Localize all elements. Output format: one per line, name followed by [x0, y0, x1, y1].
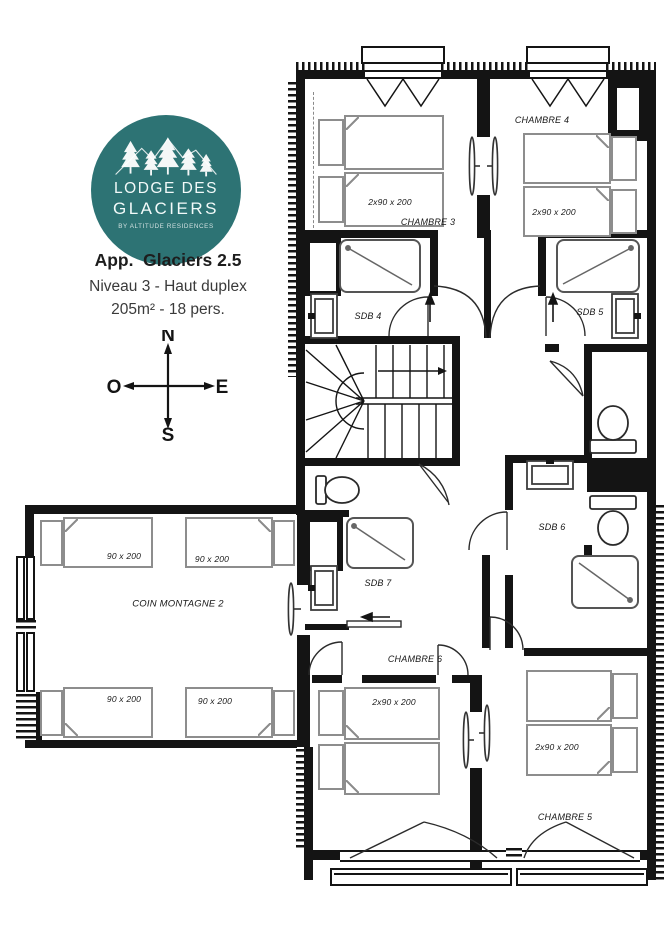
bed-mattress [344, 115, 444, 170]
bed-headboard [611, 136, 637, 181]
bed-headboard [273, 690, 295, 736]
insulated-wall-hatch [16, 620, 36, 632]
window-sill [522, 850, 640, 862]
balcony-railing [516, 868, 648, 886]
compass-north-label: N [161, 330, 175, 346]
logo-name-line2: GLACIERS [113, 199, 219, 219]
floor-plan-page: LODGE DES GLACIERS BY ALTITUDE RESIDENCE… [0, 0, 665, 940]
wall [305, 230, 430, 238]
apartment-capacity: 205m² - 18 pers. [28, 301, 308, 319]
wall [513, 455, 587, 463]
logo-tagline: BY ALTITUDE RESIDENCES [118, 223, 214, 230]
insulated-wall-hatch [16, 694, 36, 740]
pillow-fold [596, 188, 609, 201]
bed-size-label: 90 x 200 [107, 694, 141, 704]
pillow-fold [346, 174, 359, 187]
wall [296, 70, 365, 79]
insulated-wall-hatch [441, 62, 530, 70]
staircase [306, 345, 452, 458]
bed-size-label: 2x90 x 200 [535, 742, 579, 752]
wall [452, 336, 460, 466]
wall [305, 624, 349, 630]
bed-size-label: 90 x 200 [107, 551, 141, 561]
bed-headboard [318, 176, 344, 223]
pillow-fold [65, 519, 78, 532]
wall [25, 505, 34, 558]
wardrobe-line [313, 92, 314, 228]
bed-headboard [318, 690, 344, 736]
wall [524, 648, 647, 656]
bed-size-label: 2x90 x 200 [372, 697, 416, 707]
logo: LODGE DES GLACIERS BY ALTITUDE RESIDENCE… [91, 115, 241, 265]
wall [296, 70, 305, 515]
insulated-wall-hatch [656, 505, 664, 880]
window-sill [365, 70, 441, 79]
compass-west-label: O [107, 377, 122, 398]
wall [430, 230, 438, 296]
pillow-fold [597, 761, 610, 774]
room-label-sdb-4: SDB 4 [354, 311, 381, 321]
bed-size-label: 2x90 x 200 [368, 197, 412, 207]
bed-headboard [40, 690, 63, 736]
wall [305, 510, 349, 517]
wall [305, 458, 452, 466]
wall [304, 850, 340, 860]
wall [297, 515, 310, 585]
window [26, 556, 35, 620]
wall [538, 230, 546, 296]
window-sill [340, 850, 506, 862]
pillow-fold [65, 723, 78, 736]
wall [441, 70, 530, 79]
pillow-fold [597, 707, 610, 720]
room-label-chambre-5: CHAMBRE 5 [538, 812, 592, 822]
wall [640, 850, 647, 860]
logo-trees-mountains-art [110, 129, 222, 179]
wall [545, 344, 559, 352]
wall [470, 675, 482, 712]
window [16, 632, 25, 692]
wall-niche [617, 88, 639, 130]
pillow-fold [596, 135, 609, 148]
wall [305, 336, 452, 344]
compass-rose: N S O E [106, 330, 230, 442]
wall [484, 230, 491, 338]
room-label-sdb-7: SDB 7 [364, 578, 391, 588]
room-label-sdb-6: SDB 6 [538, 522, 565, 532]
insulated-wall-hatch [296, 62, 365, 70]
wall [25, 740, 297, 748]
wall [482, 555, 490, 648]
apartment-title: App. Glaciers 2.5 [28, 250, 308, 271]
compass-east-label: E [216, 377, 229, 398]
window [16, 556, 25, 620]
wall-niche [310, 522, 337, 566]
room-label-chambre-6: CHAMBRE 6 [388, 654, 442, 664]
bed-size-label: 90 x 200 [195, 554, 229, 564]
logo-name-line1: LODGE DES [114, 180, 218, 198]
compass-south-label: S [162, 425, 175, 442]
bed-headboard [273, 520, 295, 566]
room-label-sdb-5: SDB 5 [576, 307, 603, 317]
pillow-fold [346, 117, 359, 130]
insulated-wall-hatch [606, 62, 656, 70]
bed-size-label: 2x90 x 200 [532, 207, 576, 217]
window [526, 46, 610, 64]
pillow-fold [258, 519, 271, 532]
bed-headboard [318, 744, 344, 790]
bed-headboard [318, 119, 344, 166]
wall [584, 352, 592, 458]
wall [584, 344, 647, 352]
pillow-fold [258, 723, 271, 736]
wall [587, 458, 647, 492]
window [26, 632, 35, 692]
pillow-fold [346, 780, 359, 793]
insulated-wall-hatch [288, 82, 296, 377]
wall-niche [310, 243, 336, 291]
wall [304, 747, 313, 880]
room-label-chambre-4: CHAMBRE 4 [515, 115, 569, 125]
wall [584, 545, 592, 573]
insulated-wall-hatch [296, 749, 304, 849]
bed-headboard [611, 189, 637, 234]
room-label-coin-montagne-2: COIN MONTAGNE 2 [132, 599, 224, 610]
bed-size-label: 90 x 200 [198, 696, 232, 706]
bed-headboard [612, 673, 638, 719]
wall [312, 675, 342, 683]
room-label-chambre-3: CHAMBRE 3 [401, 217, 455, 227]
window [361, 46, 445, 64]
bed-headboard [612, 727, 638, 773]
wall [25, 505, 304, 514]
wall [505, 575, 513, 648]
apartment-level: Niveau 3 - Haut duplex [28, 278, 308, 296]
insulated-wall-hatch [506, 848, 522, 862]
window-sill [530, 70, 606, 79]
wall [297, 635, 310, 747]
bed-headboard [40, 520, 63, 566]
wall [477, 79, 490, 137]
wall [362, 675, 436, 683]
stairs-direction-arrow [438, 367, 447, 375]
wall [505, 455, 513, 510]
balcony-railing [330, 868, 512, 886]
wall [647, 70, 656, 880]
pillow-fold [346, 725, 359, 738]
